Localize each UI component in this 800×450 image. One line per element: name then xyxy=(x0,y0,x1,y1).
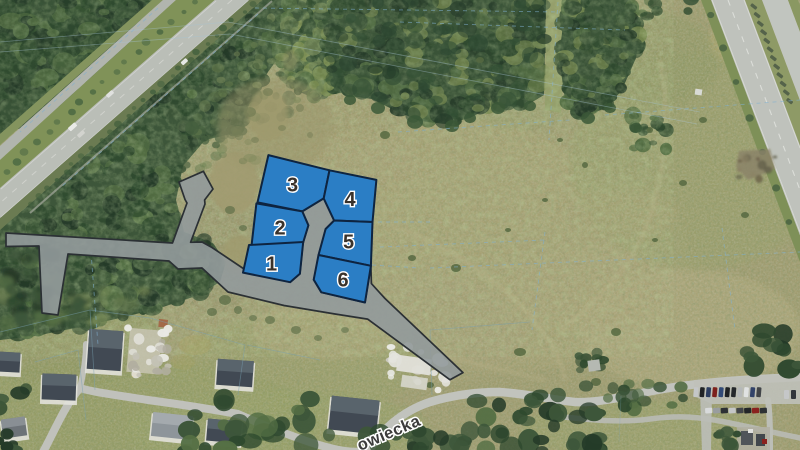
svg-text:1: 1 xyxy=(266,254,277,276)
svg-text:6: 6 xyxy=(337,270,348,292)
svg-text:5: 5 xyxy=(343,232,354,254)
svg-text:3: 3 xyxy=(287,175,298,197)
svg-text:2: 2 xyxy=(274,218,285,240)
svg-text:4: 4 xyxy=(344,189,356,211)
